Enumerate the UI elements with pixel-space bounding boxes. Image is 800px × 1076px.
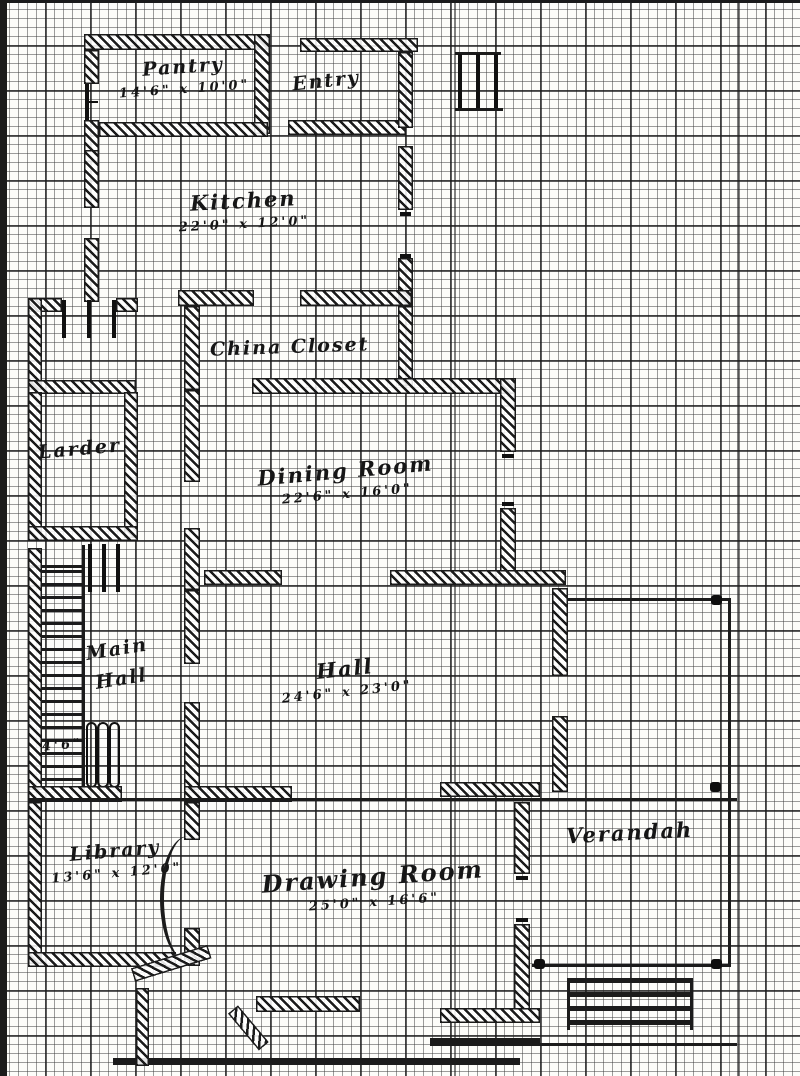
wall-kitchen-west-b (84, 238, 99, 302)
wall-division-right (440, 782, 540, 797)
dining-room-label: Dining Room 22'6" x 16'0" (256, 450, 436, 509)
wall-china-closet-west (184, 306, 200, 390)
verandah-bottom-line (532, 964, 731, 967)
kitchen-dims: 22'0" x 12'0" (178, 214, 310, 236)
wall-china-closet-east (398, 306, 413, 386)
wall-dining-south-b (390, 570, 566, 585)
china-closet-label: China Closet (210, 333, 370, 361)
entry-label: Entry (291, 66, 361, 95)
wall-larder-east (124, 392, 138, 538)
verandah-post-e (710, 782, 721, 792)
wall-kitchen-west-a (84, 150, 99, 208)
verandah-post-sw (534, 959, 545, 969)
verandah-post-se (711, 959, 722, 969)
wall-hall-east-b (552, 716, 568, 792)
wall-kitchen-east-b (398, 146, 413, 210)
wall-pantry-west-upper (84, 50, 99, 84)
main-hall-name-line2: Hall (89, 663, 154, 694)
division-line (28, 798, 737, 801)
wall-kitchen-south-b (300, 290, 412, 306)
entry-name: Entry (291, 66, 361, 95)
entry-window-base (455, 108, 503, 111)
verandah-top-line (568, 598, 730, 601)
wall-hall-west-a (184, 590, 200, 664)
wall-hall-east-a (552, 588, 568, 676)
verandah-name: Verandah (565, 817, 693, 849)
stair-stringer-line (82, 545, 85, 790)
wall-left-mid (28, 380, 136, 394)
wall-larder-west (28, 392, 42, 540)
larder-name: Larder (37, 434, 122, 463)
wall-library-west (28, 802, 42, 964)
floor-plan-sheet: Pantry 14'6" x 10'0" Entry Kitchen 22'0"… (0, 0, 800, 1076)
heavy-grid-line-mid (454, 0, 456, 1076)
wall-bay-diagonal-right (228, 1005, 269, 1050)
wall-west-upper (28, 298, 42, 390)
wall-pantry-south (99, 122, 268, 137)
wall-dining-east-a (500, 378, 516, 452)
wall-drawing-south-a (256, 996, 360, 1012)
verandah-right-line (728, 598, 731, 965)
page-edge-left (0, 0, 7, 1076)
wall-drawing-south-b (440, 1008, 540, 1023)
wall-left-top-b (116, 298, 138, 312)
page-edge-top (0, 0, 800, 3)
larder-north-window-icon (62, 300, 116, 338)
wall-library-northeast (184, 802, 200, 840)
pantry-label: Pantry 14'6" x 10'0" (117, 51, 251, 101)
wall-entry-north (300, 38, 418, 52)
wall-kitchen-east-a (398, 52, 413, 128)
drawing-south-band (430, 1038, 540, 1046)
wall-drawing-east-a (514, 802, 530, 874)
drawing-room-label: Drawing Room 25'0" x 16'6" (261, 854, 487, 917)
wall-hall-west-b (184, 702, 200, 790)
wall-stair-west (28, 548, 42, 790)
wall-hall-divider-upper (184, 390, 200, 482)
verandah-post-ne (711, 595, 722, 605)
wall-dining-south-a (204, 570, 282, 585)
main-hall-name-line1: Main (84, 633, 149, 664)
verandah-step-base-line (540, 1043, 737, 1046)
verandah-steps (567, 978, 693, 1030)
main-hall-southwest-window-icon (86, 722, 120, 784)
verandah-label: Verandah (565, 817, 693, 849)
wall-pantry-entry-divider (254, 34, 270, 134)
drawing-east-window-icon (516, 876, 528, 922)
wall-bay-west (136, 988, 149, 1066)
kitchen-label: Kitchen 22'0" x 12'0" (177, 185, 311, 236)
kitchen-east-window-icon (400, 212, 411, 258)
wall-pantry-north (84, 34, 270, 50)
china-closet-name: China Closet (210, 333, 370, 361)
heavy-grid-line-right (737, 0, 740, 1076)
wall-dining-north (252, 378, 514, 394)
entry-window-icon (458, 54, 498, 108)
wall-kitchen-south-a (178, 290, 254, 306)
kitchen-name: Kitchen (177, 185, 310, 217)
wall-drawing-east-b (514, 924, 530, 1010)
pantry-west-window-icon (85, 84, 98, 120)
plan-bottom-band (113, 1058, 520, 1065)
wall-entry-south (288, 120, 406, 135)
wall-larder-south (28, 526, 138, 541)
dining-east-window-icon (502, 454, 514, 506)
main-hall-label: Main Hall (84, 633, 154, 694)
main-hall-west-window-icon (88, 544, 120, 592)
larder-label: Larder (37, 434, 122, 463)
wall-hall-divider-lower (184, 528, 200, 590)
hall-label: Hall 24'6" x 23'0" (278, 649, 413, 707)
